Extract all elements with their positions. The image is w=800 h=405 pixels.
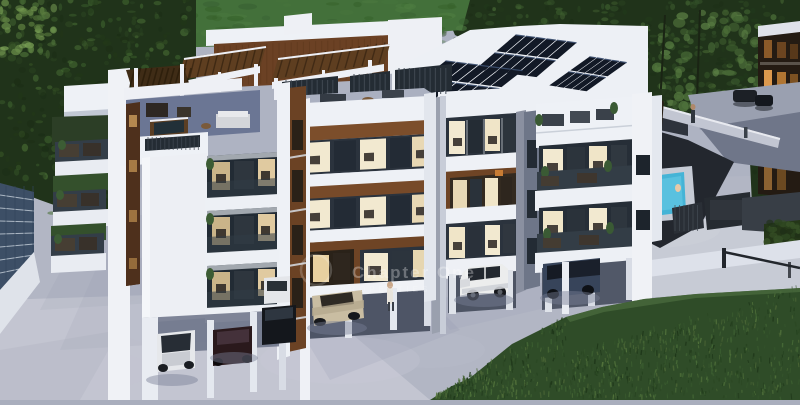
svg-text:PROPERTIES: PROPERTIES	[340, 285, 431, 294]
svg-text:Chapter One: Chapter One	[352, 263, 476, 282]
